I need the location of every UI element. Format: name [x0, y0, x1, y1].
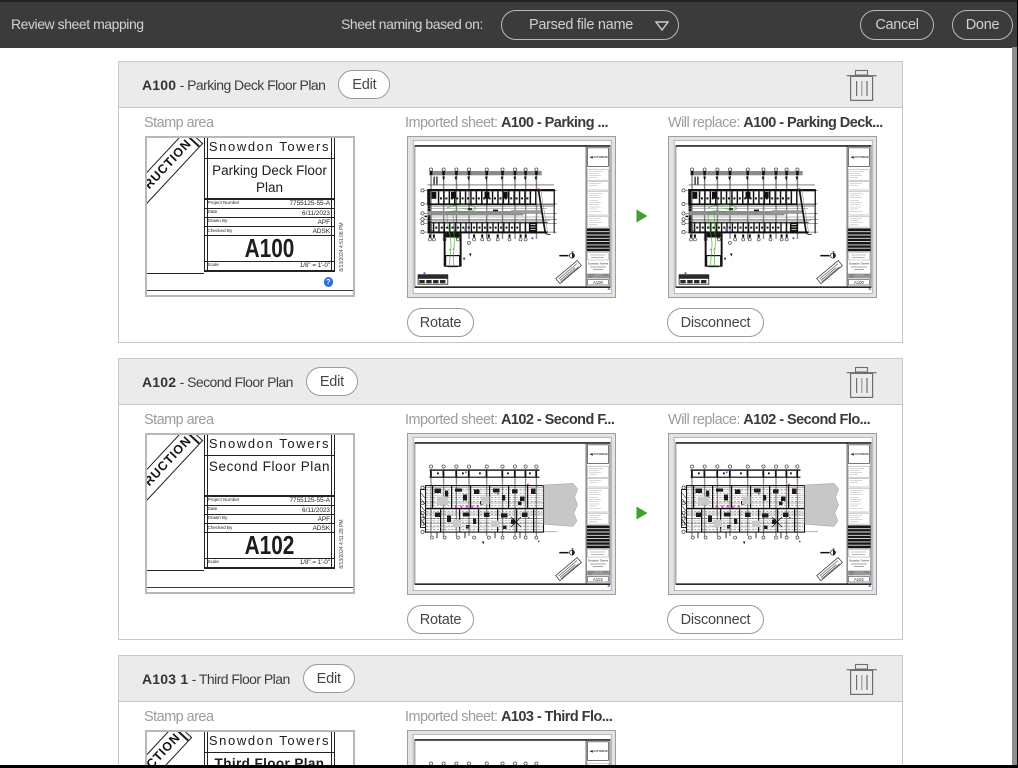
svg-text:A100: A100 [593, 280, 603, 285]
svg-text:A102: A102 [854, 577, 864, 582]
svg-text:A100: A100 [854, 280, 864, 285]
svg-text:A102: A102 [593, 577, 603, 582]
